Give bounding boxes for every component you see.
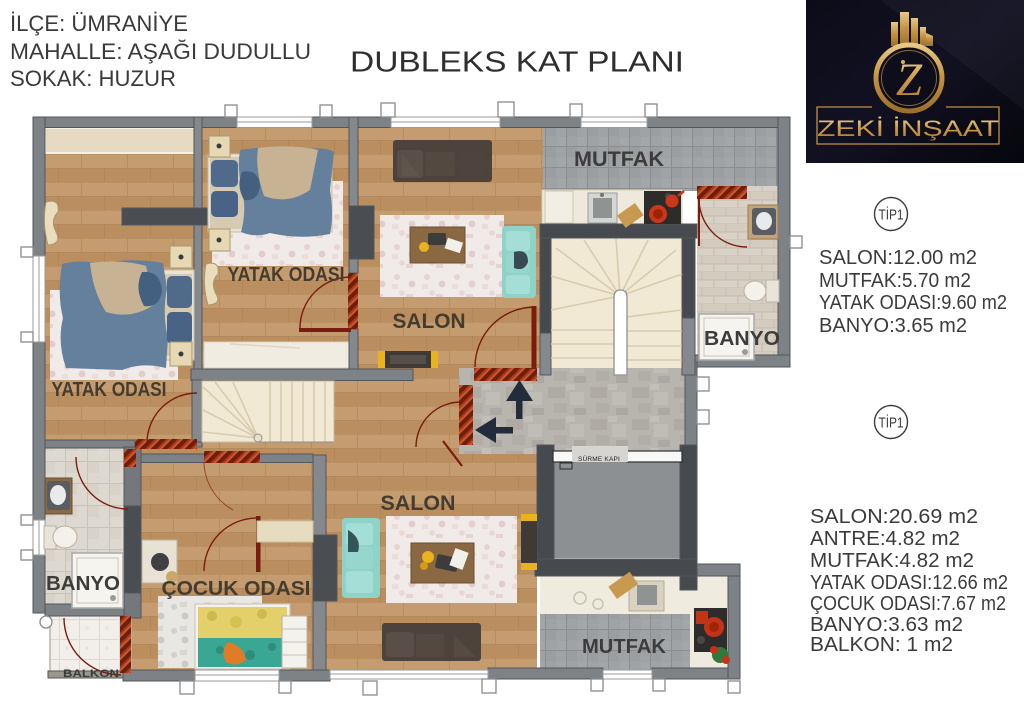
svg-text:BANYO:3.63 m2: BANYO:3.63 m2 <box>810 614 963 636</box>
svg-text:SALON: SALON <box>381 492 456 515</box>
svg-text:MUTFAK:5.70 m2: MUTFAK:5.70 m2 <box>819 270 971 292</box>
svg-text:BANYO:3.65 m2: BANYO:3.65 m2 <box>819 315 967 337</box>
svg-text:BALKON: BALKON <box>63 668 119 680</box>
svg-text:YATAK ODASI:12.66 m2: YATAK ODASI:12.66 m2 <box>810 572 1008 594</box>
svg-text:İLÇE: ÜMRANİYE: İLÇE: ÜMRANİYE <box>10 11 188 36</box>
svg-text:BANYO: BANYO <box>46 573 120 595</box>
svg-text:YATAK ODASI: YATAK ODASI <box>52 378 167 401</box>
svg-text:YATAK ODASI:9.60 m2: YATAK ODASI:9.60 m2 <box>819 292 1007 314</box>
svg-text:TİP1: TİP1 <box>879 414 904 432</box>
svg-text:DUBLEKS KAT PLANI: DUBLEKS KAT PLANI <box>350 47 684 79</box>
svg-text:SALON:12.00 m2: SALON:12.00 m2 <box>819 247 977 269</box>
svg-text:SALON: SALON <box>393 310 466 333</box>
svg-text:MUTFAK: MUTFAK <box>574 148 664 171</box>
svg-text:SÜRME KAPI: SÜRME KAPI <box>578 455 620 463</box>
svg-text:YATAK ODASI: YATAK ODASI <box>228 263 345 286</box>
svg-text:MUTFAK:4.82 m2: MUTFAK:4.82 m2 <box>810 550 974 572</box>
svg-text:SALON:20.69 m2: SALON:20.69 m2 <box>810 506 978 528</box>
svg-text:MUTFAK: MUTFAK <box>582 636 667 658</box>
svg-text:Z: Z <box>896 54 923 106</box>
svg-text:TİP1: TİP1 <box>879 206 904 224</box>
svg-text:MAHALLE: AŞAĞI DUDULLU: MAHALLE: AŞAĞI DUDULLU <box>10 39 311 64</box>
svg-text:BALKON: 1 m2: BALKON: 1 m2 <box>810 634 953 656</box>
svg-text:ZEKİ İNŞAAT: ZEKİ İNŞAAT <box>817 116 999 141</box>
svg-text:SOKAK: HUZUR: SOKAK: HUZUR <box>10 66 176 91</box>
svg-text:ÇOCUK ODASI:7.67 m2: ÇOCUK ODASI:7.67 m2 <box>810 593 1006 615</box>
svg-text:ÇOCUK ODASI: ÇOCUK ODASI <box>162 578 311 600</box>
svg-text:ANTRE:4.82 m2: ANTRE:4.82 m2 <box>810 528 960 550</box>
svg-text:BANYO: BANYO <box>704 328 780 350</box>
